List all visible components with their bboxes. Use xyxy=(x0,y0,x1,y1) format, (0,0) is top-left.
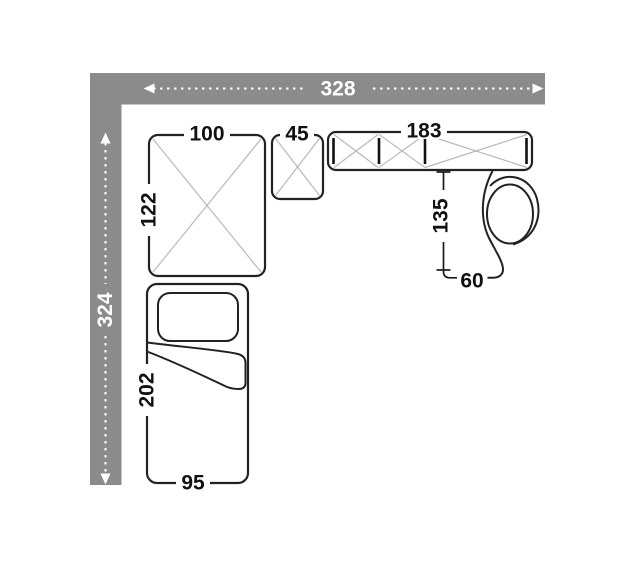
chair-zone-width-label: 60 xyxy=(460,270,483,293)
room-depth-label: 324 xyxy=(94,292,117,327)
floor-plan-diagram: 328 324 xyxy=(0,0,639,568)
armchair-back xyxy=(490,177,538,245)
large-seat-unit xyxy=(149,135,265,276)
bed-length-label: 202 xyxy=(136,372,159,407)
large-seat-width-label: 100 xyxy=(189,123,224,146)
chair-zone-depth-label: 135 xyxy=(430,198,453,233)
small-seat-width-label: 45 xyxy=(285,123,309,146)
large-seat-depth-label: 122 xyxy=(138,192,161,227)
armchair-seat xyxy=(487,185,533,244)
sofa-width-label: 183 xyxy=(406,120,441,143)
bed xyxy=(147,284,248,483)
bed-width-label: 95 xyxy=(181,472,205,495)
room-width-label: 328 xyxy=(320,78,355,101)
armchair xyxy=(483,171,539,278)
